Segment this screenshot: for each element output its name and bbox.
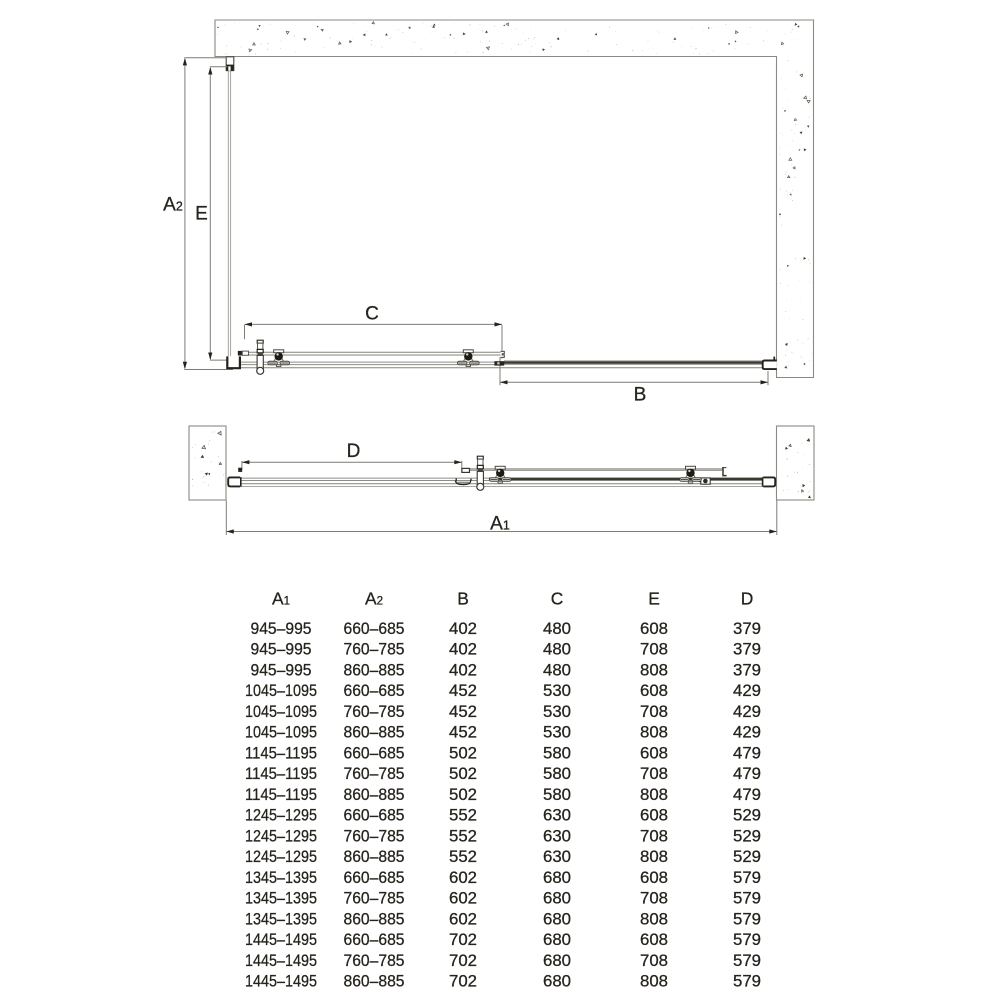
svg-text:580: 580	[543, 743, 571, 762]
svg-text:680: 680	[543, 868, 571, 887]
svg-text:530: 530	[543, 681, 571, 700]
svg-text:608: 608	[640, 619, 668, 638]
svg-text:702: 702	[449, 930, 477, 949]
svg-text:660–685: 660–685	[344, 619, 405, 638]
svg-text:1045–1095: 1045–1095	[245, 681, 317, 700]
svg-text:608: 608	[640, 681, 668, 700]
svg-text:760–785: 760–785	[344, 826, 405, 845]
svg-text:429: 429	[733, 723, 761, 742]
svg-text:D: D	[741, 589, 754, 609]
svg-text:608: 608	[640, 930, 668, 949]
svg-text:860–885: 860–885	[344, 660, 405, 679]
svg-text:860–885: 860–885	[344, 785, 405, 804]
svg-text:708: 708	[640, 951, 668, 970]
svg-text:808: 808	[640, 972, 668, 991]
svg-text:1045–1095: 1045–1095	[245, 702, 317, 721]
svg-text:530: 530	[543, 702, 571, 721]
svg-text:1145–1195: 1145–1195	[245, 764, 317, 783]
svg-text:1245–1295: 1245–1295	[245, 826, 317, 845]
svg-text:502: 502	[449, 743, 477, 762]
svg-text:1245–1295: 1245–1295	[245, 847, 317, 866]
svg-text:760–785: 760–785	[344, 764, 405, 783]
svg-text:660–685: 660–685	[344, 681, 405, 700]
svg-text:1045–1095: 1045–1095	[245, 723, 317, 742]
svg-text:402: 402	[449, 660, 477, 679]
svg-text:860–885: 860–885	[344, 972, 405, 991]
svg-text:660–685: 660–685	[344, 743, 405, 762]
svg-text:630: 630	[543, 806, 571, 825]
svg-text:708: 708	[640, 826, 668, 845]
svg-text:660–685: 660–685	[344, 930, 405, 949]
svg-text:452: 452	[449, 723, 477, 742]
svg-text:808: 808	[640, 847, 668, 866]
svg-text:B: B	[634, 385, 647, 406]
svg-text:708: 708	[640, 889, 668, 908]
svg-text:860–885: 860–885	[344, 847, 405, 866]
svg-text:630: 630	[543, 847, 571, 866]
svg-text:C: C	[551, 589, 564, 609]
svg-text:680: 680	[543, 889, 571, 908]
svg-text:760–785: 760–785	[344, 702, 405, 721]
svg-text:1245–1295: 1245–1295	[245, 806, 317, 825]
svg-text:529: 529	[733, 806, 761, 825]
svg-text:579: 579	[733, 972, 761, 991]
svg-text:479: 479	[733, 764, 761, 783]
svg-text:660–685: 660–685	[344, 806, 405, 825]
svg-text:1145–1195: 1145–1195	[245, 785, 317, 804]
svg-text:1145–1195: 1145–1195	[245, 743, 317, 762]
svg-text:530: 530	[543, 723, 571, 742]
svg-text:1445–1495: 1445–1495	[245, 951, 317, 970]
svg-text:579: 579	[733, 930, 761, 949]
svg-text:760–785: 760–785	[344, 640, 405, 659]
svg-text:479: 479	[733, 785, 761, 804]
svg-text:580: 580	[543, 764, 571, 783]
svg-text:1345–1395: 1345–1395	[245, 909, 317, 928]
svg-text:480: 480	[543, 640, 571, 659]
svg-text:E: E	[648, 589, 660, 609]
svg-text:708: 708	[640, 764, 668, 783]
svg-text:552: 552	[449, 806, 477, 825]
svg-text:808: 808	[640, 660, 668, 679]
svg-text:C: C	[365, 304, 379, 325]
svg-text:860–885: 860–885	[344, 723, 405, 742]
svg-text:608: 608	[640, 806, 668, 825]
svg-text:680: 680	[543, 972, 571, 991]
svg-text:479: 479	[733, 743, 761, 762]
svg-text:945–995: 945–995	[251, 640, 312, 659]
svg-text:452: 452	[449, 702, 477, 721]
svg-text:808: 808	[640, 909, 668, 928]
svg-text:529: 529	[733, 847, 761, 866]
svg-text:502: 502	[449, 764, 477, 783]
svg-text:429: 429	[733, 702, 761, 721]
svg-text:452: 452	[449, 681, 477, 700]
svg-text:660–685: 660–685	[344, 868, 405, 887]
svg-text:579: 579	[733, 951, 761, 970]
svg-text:480: 480	[543, 660, 571, 679]
svg-text:402: 402	[449, 619, 477, 638]
svg-text:602: 602	[449, 909, 477, 928]
svg-text:E: E	[195, 204, 208, 225]
svg-text:945–995: 945–995	[251, 660, 312, 679]
svg-text:580: 580	[543, 785, 571, 804]
svg-text:760–785: 760–785	[344, 889, 405, 908]
svg-text:680: 680	[543, 909, 571, 928]
svg-text:579: 579	[733, 909, 761, 928]
svg-text:860–885: 860–885	[344, 909, 405, 928]
svg-text:1345–1395: 1345–1395	[245, 889, 317, 908]
svg-text:680: 680	[543, 930, 571, 949]
svg-text:1445–1495: 1445–1495	[245, 972, 317, 991]
svg-text:608: 608	[640, 743, 668, 762]
svg-text:429: 429	[733, 681, 761, 700]
svg-text:1345–1395: 1345–1395	[245, 868, 317, 887]
svg-text:529: 529	[733, 826, 761, 845]
svg-text:708: 708	[640, 640, 668, 659]
svg-text:602: 602	[449, 889, 477, 908]
svg-text:579: 579	[733, 868, 761, 887]
svg-text:630: 630	[543, 826, 571, 845]
svg-text:945–995: 945–995	[251, 619, 312, 638]
svg-text:402: 402	[449, 640, 477, 659]
svg-text:602: 602	[449, 868, 477, 887]
svg-text:808: 808	[640, 723, 668, 742]
svg-text:B: B	[457, 589, 469, 609]
svg-text:552: 552	[449, 826, 477, 845]
svg-text:D: D	[347, 441, 361, 462]
svg-text:702: 702	[449, 972, 477, 991]
svg-text:1445–1495: 1445–1495	[245, 930, 317, 949]
svg-text:379: 379	[733, 660, 761, 679]
svg-text:608: 608	[640, 868, 668, 887]
svg-text:579: 579	[733, 889, 761, 908]
svg-text:708: 708	[640, 702, 668, 721]
svg-text:808: 808	[640, 785, 668, 804]
svg-text:379: 379	[733, 640, 761, 659]
svg-text:680: 680	[543, 951, 571, 970]
svg-text:552: 552	[449, 847, 477, 866]
svg-text:702: 702	[449, 951, 477, 970]
svg-text:760–785: 760–785	[344, 951, 405, 970]
svg-text:379: 379	[733, 619, 761, 638]
svg-text:480: 480	[543, 619, 571, 638]
svg-text:502: 502	[449, 785, 477, 804]
